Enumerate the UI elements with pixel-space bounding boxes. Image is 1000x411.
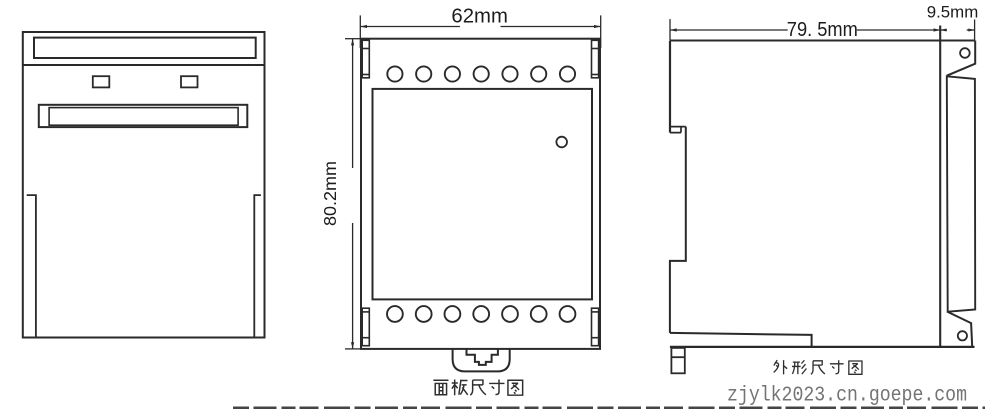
svg-text:79. 5mm: 79. 5mm: [787, 19, 858, 41]
svg-text:zjylk2023.cn.goepe.com: zjylk2023.cn.goepe.com: [727, 385, 967, 408]
svg-text:62mm: 62mm: [451, 6, 508, 28]
svg-text:9.5mm: 9.5mm: [927, 3, 979, 22]
svg-text:80.2mm: 80.2mm: [320, 161, 340, 226]
